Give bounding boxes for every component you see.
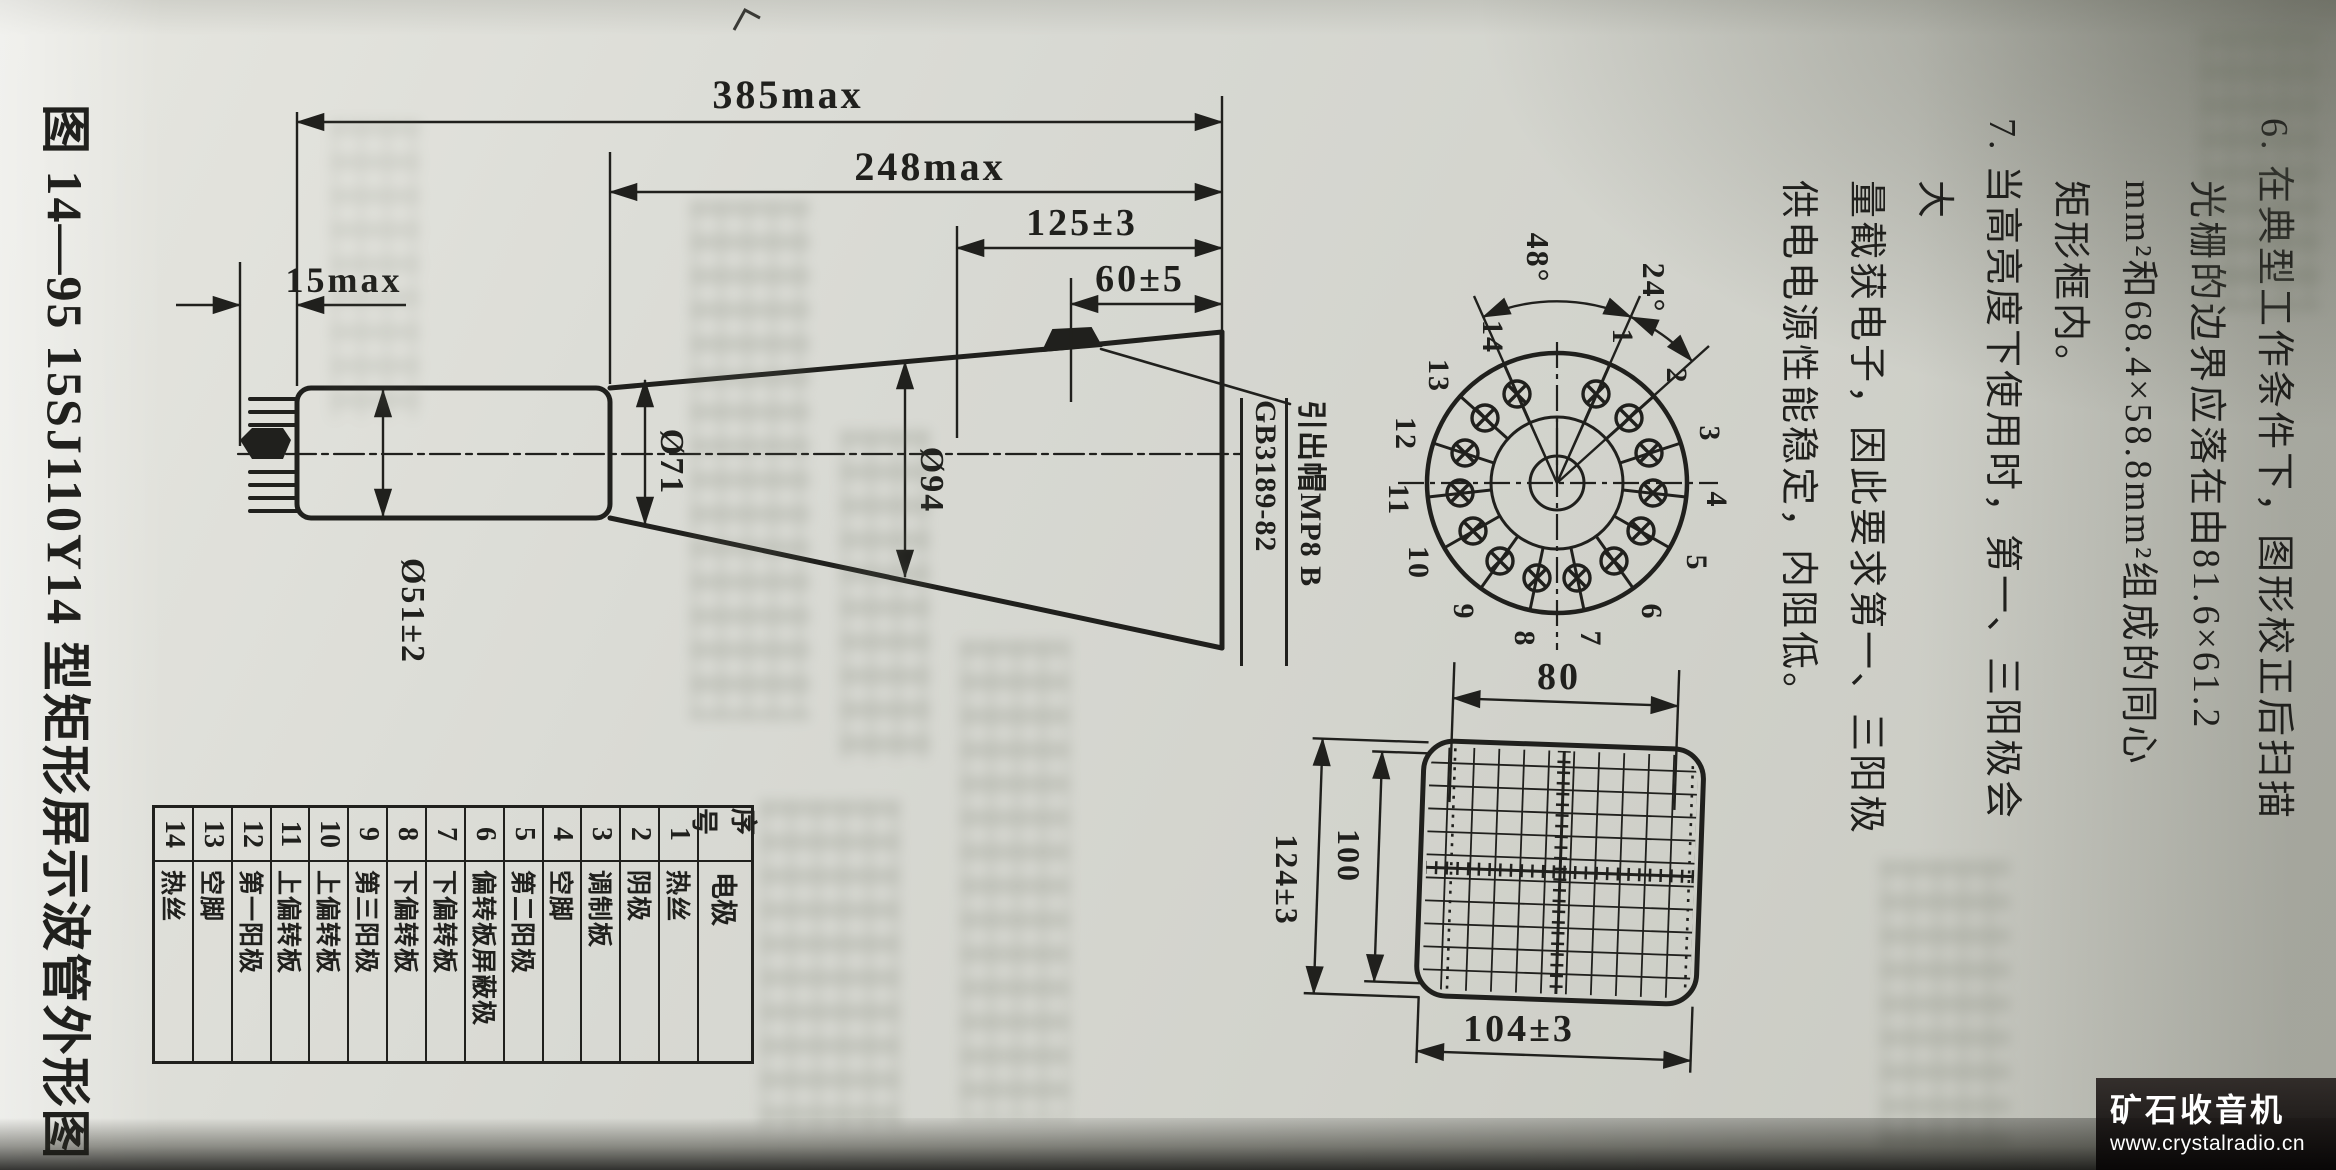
dia-base-label: Ø51±2 [392, 526, 432, 696]
table-electrode: 第一阳极 [234, 862, 270, 1064]
pin-number-7: 7 [1575, 617, 1605, 661]
table-electrode: 下偏转板 [428, 862, 464, 1064]
watermark-url: www.crystalradio.cn [2110, 1130, 2305, 1158]
dim-body-length: 248max [830, 144, 1030, 188]
book-page-photo: 385max 248max 125±3 60±5 15max 80 104±3 … [0, 0, 2336, 1170]
table-column: 5第二阳极 [505, 808, 544, 1061]
pin-number-2: 2 [1661, 354, 1691, 398]
paragraph-6: 6. 在典型工作条件下，图形校正后扫描 光栅的边界应落在由81.6×61.2 m… [2036, 118, 2308, 842]
table-electrode: 上偏转板 [311, 862, 347, 1064]
pin-number-1: 1 [1607, 315, 1637, 359]
pin-number-14: 14 [1477, 315, 1507, 359]
table-header-seq: 序号 [701, 808, 751, 860]
table-seq: 14 [156, 808, 192, 860]
table-seq: 4 [544, 808, 580, 860]
table-seq: 2 [622, 808, 658, 860]
table-column: 12第一阳极 [233, 808, 272, 1061]
book-edge-shadow [0, 1118, 2336, 1170]
table-electrode: 热丝 [661, 862, 697, 1064]
watermark-title: 矿石收音机 [2110, 1090, 2285, 1130]
cap-standard-text: GB3189-82 [1240, 398, 1285, 666]
table-seq: 9 [350, 808, 386, 860]
pin-base-diagram [1398, 296, 1718, 650]
dim-raster-height: 100 [1330, 818, 1368, 894]
table-electrode: 调制板 [583, 862, 619, 1064]
anode-cap-callout: 引出帽MP8 B GB3189-82 [1246, 398, 1330, 666]
table-column: 3调制板 [582, 808, 621, 1061]
table-seq: 3 [583, 808, 619, 860]
table-column: 9第三阳极 [349, 808, 388, 1061]
angle-gap-label: 48° [1518, 224, 1558, 292]
dim-overall-length: 385max [688, 72, 888, 116]
table-seq: 8 [389, 808, 425, 860]
table-column: 14热丝 [155, 808, 194, 1061]
table-header-electrode: 电极 [701, 862, 751, 1066]
angle-pitch-label: 24° [1634, 254, 1674, 322]
pin-number-12: 12 [1390, 412, 1420, 456]
pin-number-9: 9 [1448, 590, 1478, 634]
watermark: 矿石收音机 www.crystalradio.cn [2096, 1078, 2336, 1170]
table-column: 4空脚 [544, 808, 583, 1061]
table-electrode: 下偏转板 [389, 862, 425, 1064]
table-seq: 13 [195, 808, 231, 860]
dia-neck-label: Ø71 [652, 416, 690, 508]
table-seq: 12 [234, 808, 270, 860]
table-seq: 10 [311, 808, 347, 860]
table-seq: 6 [467, 808, 503, 860]
pen-mark [734, 10, 760, 30]
pin-number-5: 5 [1681, 541, 1711, 585]
dim-screen-width: 104±3 [1429, 1008, 1609, 1050]
dim-raster-width: 80 [1519, 656, 1599, 698]
dia-cone-label: Ø94 [912, 424, 950, 536]
table-electrode: 空脚 [195, 862, 231, 1064]
table-header-column: 序号 电极 [699, 808, 751, 1061]
cap-leader-line [1101, 349, 1290, 404]
table-column: 10上偏转板 [310, 808, 349, 1061]
electrode-table: 14热丝 13空脚 12第一阳极 11上偏转板 10上偏转板 9第三阳极 8下偏… [152, 805, 754, 1064]
table-electrode: 空脚 [544, 862, 580, 1064]
table-column: 7下偏转板 [427, 808, 466, 1061]
cap-label-text: 引出帽MP8 B [1285, 398, 1330, 666]
table-electrode: 阴极 [622, 862, 658, 1064]
pin-number-4: 4 [1701, 478, 1731, 522]
pin-number-8: 8 [1509, 617, 1539, 661]
dim-front-length: 125±3 [1002, 202, 1162, 244]
table-column: 2阴极 [621, 808, 660, 1061]
body-text: 6. 在典型工作条件下，图形校正后扫描 光栅的边界应落在由81.6×61.2 m… [1764, 118, 2308, 842]
pin-number-13: 13 [1423, 354, 1453, 398]
table-seq: 7 [428, 808, 464, 860]
table-electrode: 第二阳极 [506, 862, 542, 1064]
figure-caption: 图 14—95 15SJ110Y14 型矩形屏示波管外形图 [26, 104, 112, 1160]
table-electrode: 上偏转板 [272, 862, 308, 1064]
pin-number-6: 6 [1636, 590, 1666, 634]
table-seq: 11 [272, 808, 308, 860]
table-electrode: 热丝 [156, 862, 192, 1064]
dim-screen-height: 124±3 [1268, 812, 1306, 948]
table-column: 8下偏转板 [388, 808, 427, 1061]
table-electrode: 第三阳极 [350, 862, 386, 1064]
table-seq: 5 [506, 808, 542, 860]
dim-pin-length: 15max [274, 260, 414, 300]
pin-number-10: 10 [1403, 541, 1433, 585]
table-electrode: 偏转板屏蔽极 [467, 862, 503, 1064]
dim-cap-distance: 60±5 [1065, 258, 1215, 300]
table-column: 13空脚 [194, 808, 233, 1061]
pin-number-11: 11 [1383, 478, 1413, 522]
table-column: 6偏转板屏蔽极 [466, 808, 505, 1061]
graticule-grid [1420, 743, 1701, 1002]
paragraph-7: 7. 当高亮度下使用时，第一、三阳极会大 量截获电子，因此要求第一、三阳极 供电… [1764, 118, 2036, 842]
pin-number-3: 3 [1694, 412, 1724, 456]
table-column: 11上偏转板 [272, 808, 311, 1061]
